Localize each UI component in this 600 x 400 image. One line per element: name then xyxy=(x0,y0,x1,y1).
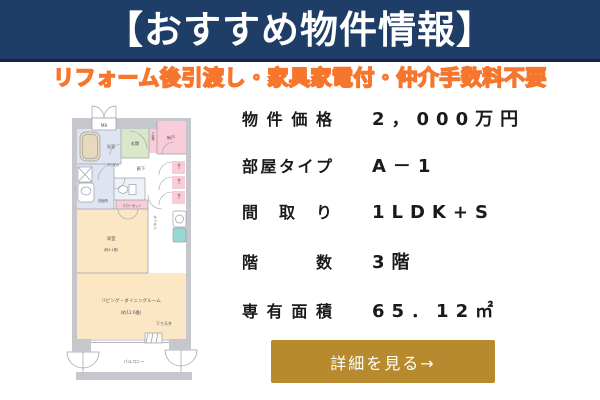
toilet-icon xyxy=(118,186,128,194)
spec-row-area: 専有面積 65．12㎡ xyxy=(242,300,562,324)
page-title: 【おすすめ物件情報】 xyxy=(105,11,495,49)
label-living-dining-size: (約12.6畳) xyxy=(121,309,142,316)
label-mb: MB xyxy=(101,123,108,128)
spec-label-price: 物件価格 xyxy=(242,108,332,132)
label-washroom: 洗面所 xyxy=(98,198,109,203)
label-entrance: 玄関 xyxy=(131,140,139,147)
label-western-room-size: (約6.1畳) xyxy=(104,247,119,252)
spec-value-layout: 1LDK+S xyxy=(372,201,495,225)
balcony xyxy=(67,350,197,380)
label-lowered-ceiling: 下り天井 xyxy=(156,320,172,326)
spec-value-floor: 3階 xyxy=(372,251,417,275)
label-kitchen: キッチン xyxy=(152,215,158,230)
spec-value-area: 65．12㎡ xyxy=(372,300,500,324)
spec-row-floor: 階数 3階 xyxy=(242,251,562,275)
spec-row-room-type: 部屋タイプ A－1 xyxy=(242,155,562,179)
floorplan-image: MB 浴室 玄関 下駄箱 納戸 廊下 物入 物入 物入 下り天井 洗面所 クロー… xyxy=(59,100,199,385)
label-western-room: 洋室 xyxy=(106,235,116,242)
floorplan: MB 浴室 玄関 下駄箱 納戸 廊下 物入 物入 物入 下り天井 洗面所 クロー… xyxy=(59,100,199,385)
subtitle-banner: リフォーム後引渡し・家具家電付・仲介手数料不要 xyxy=(0,63,600,93)
spec-value-room-type: A－1 xyxy=(372,155,437,179)
spec-row-price: 物件価格 2，000万円 xyxy=(242,108,562,132)
label-closet-2: 物入 xyxy=(177,178,180,185)
spec-label-floor: 階数 xyxy=(242,251,332,275)
label-storage-room: 納戸 xyxy=(167,134,175,141)
spec-row-layout: 間取り 1LDK+S xyxy=(242,201,562,225)
spec-label-room-type: 部屋タイプ xyxy=(242,155,332,179)
property-card: 【おすすめ物件情報】 リフォーム後引渡し・家具家電付・仲介手数料不要 xyxy=(0,0,600,400)
label-closet-1: 物入 xyxy=(177,163,180,170)
spec-label-area: 専有面積 xyxy=(242,300,332,324)
balcony-fence xyxy=(76,372,192,380)
label-closet: クローゼット xyxy=(122,203,141,208)
header: 【おすすめ物件情報】 xyxy=(0,0,600,62)
label-balcony: バルコニー xyxy=(124,359,145,364)
label-closet-3: 物入 xyxy=(177,193,180,200)
room-living-dining xyxy=(77,273,186,339)
spec-label-layout: 間取り xyxy=(242,201,332,225)
spec-value-price: 2，000万円 xyxy=(372,108,525,132)
label-hallway: 廊下 xyxy=(137,165,145,172)
label-living-dining: リビング・ダイニングルーム xyxy=(101,297,161,304)
label-bath: 浴室 xyxy=(107,143,115,150)
label-shoe-cabinet: 下駄箱 xyxy=(151,132,155,141)
stove-icon xyxy=(173,228,186,242)
details-button[interactable]: 詳細を見る→ xyxy=(271,340,495,383)
label-lowered-ceiling-small: 下り天井 xyxy=(107,162,119,167)
